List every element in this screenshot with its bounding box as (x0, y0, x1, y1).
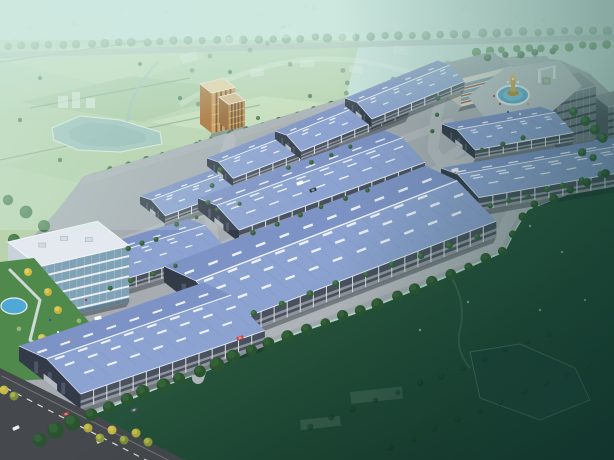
industrial-park-aerial-rendering (0, 0, 614, 460)
scene-svg (0, 0, 614, 460)
dark-overlay-bottom-right (0, 0, 614, 460)
